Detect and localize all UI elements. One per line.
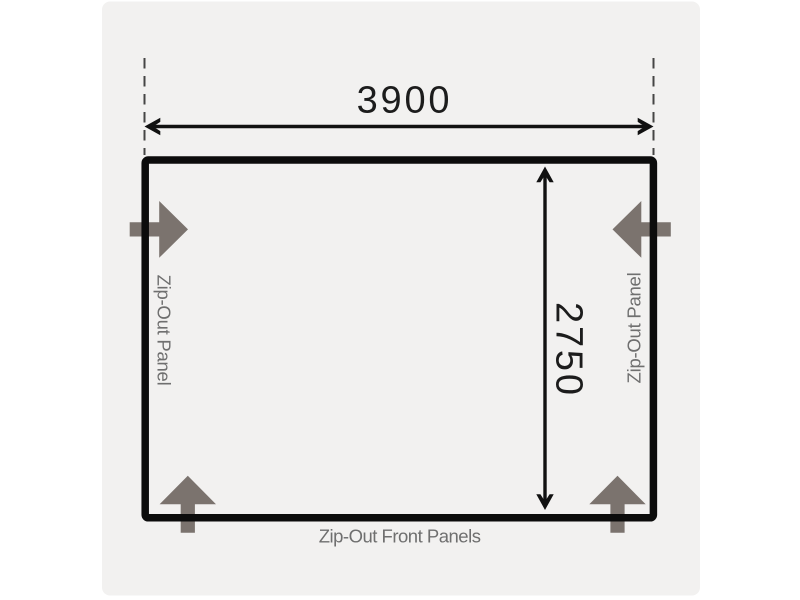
- svg-text:Zip-Out Front Panels: Zip-Out Front Panels: [319, 526, 481, 547]
- svg-text:Zip-Out Panel: Zip-Out Panel: [154, 275, 175, 386]
- svg-text:Zip-Out Panel: Zip-Out Panel: [624, 273, 645, 384]
- svg-text:3900: 3900: [357, 80, 453, 122]
- svg-text:2750: 2750: [548, 302, 590, 398]
